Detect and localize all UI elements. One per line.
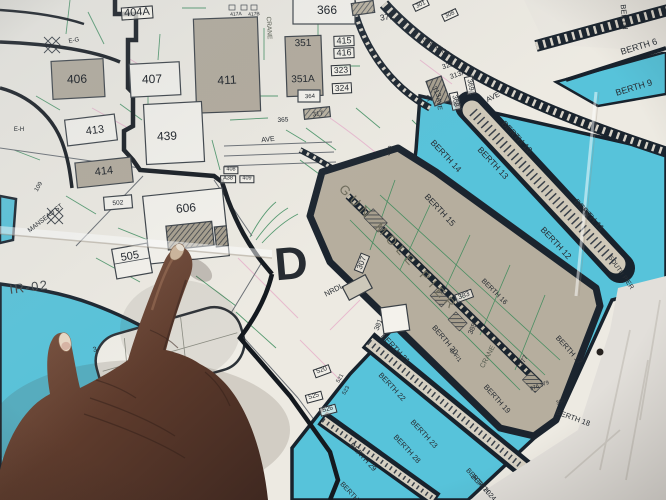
map-photo: 404A406407411413439414366372417A417B3513… xyxy=(0,0,666,500)
map-artwork xyxy=(0,0,666,500)
topleft-light xyxy=(0,0,666,500)
